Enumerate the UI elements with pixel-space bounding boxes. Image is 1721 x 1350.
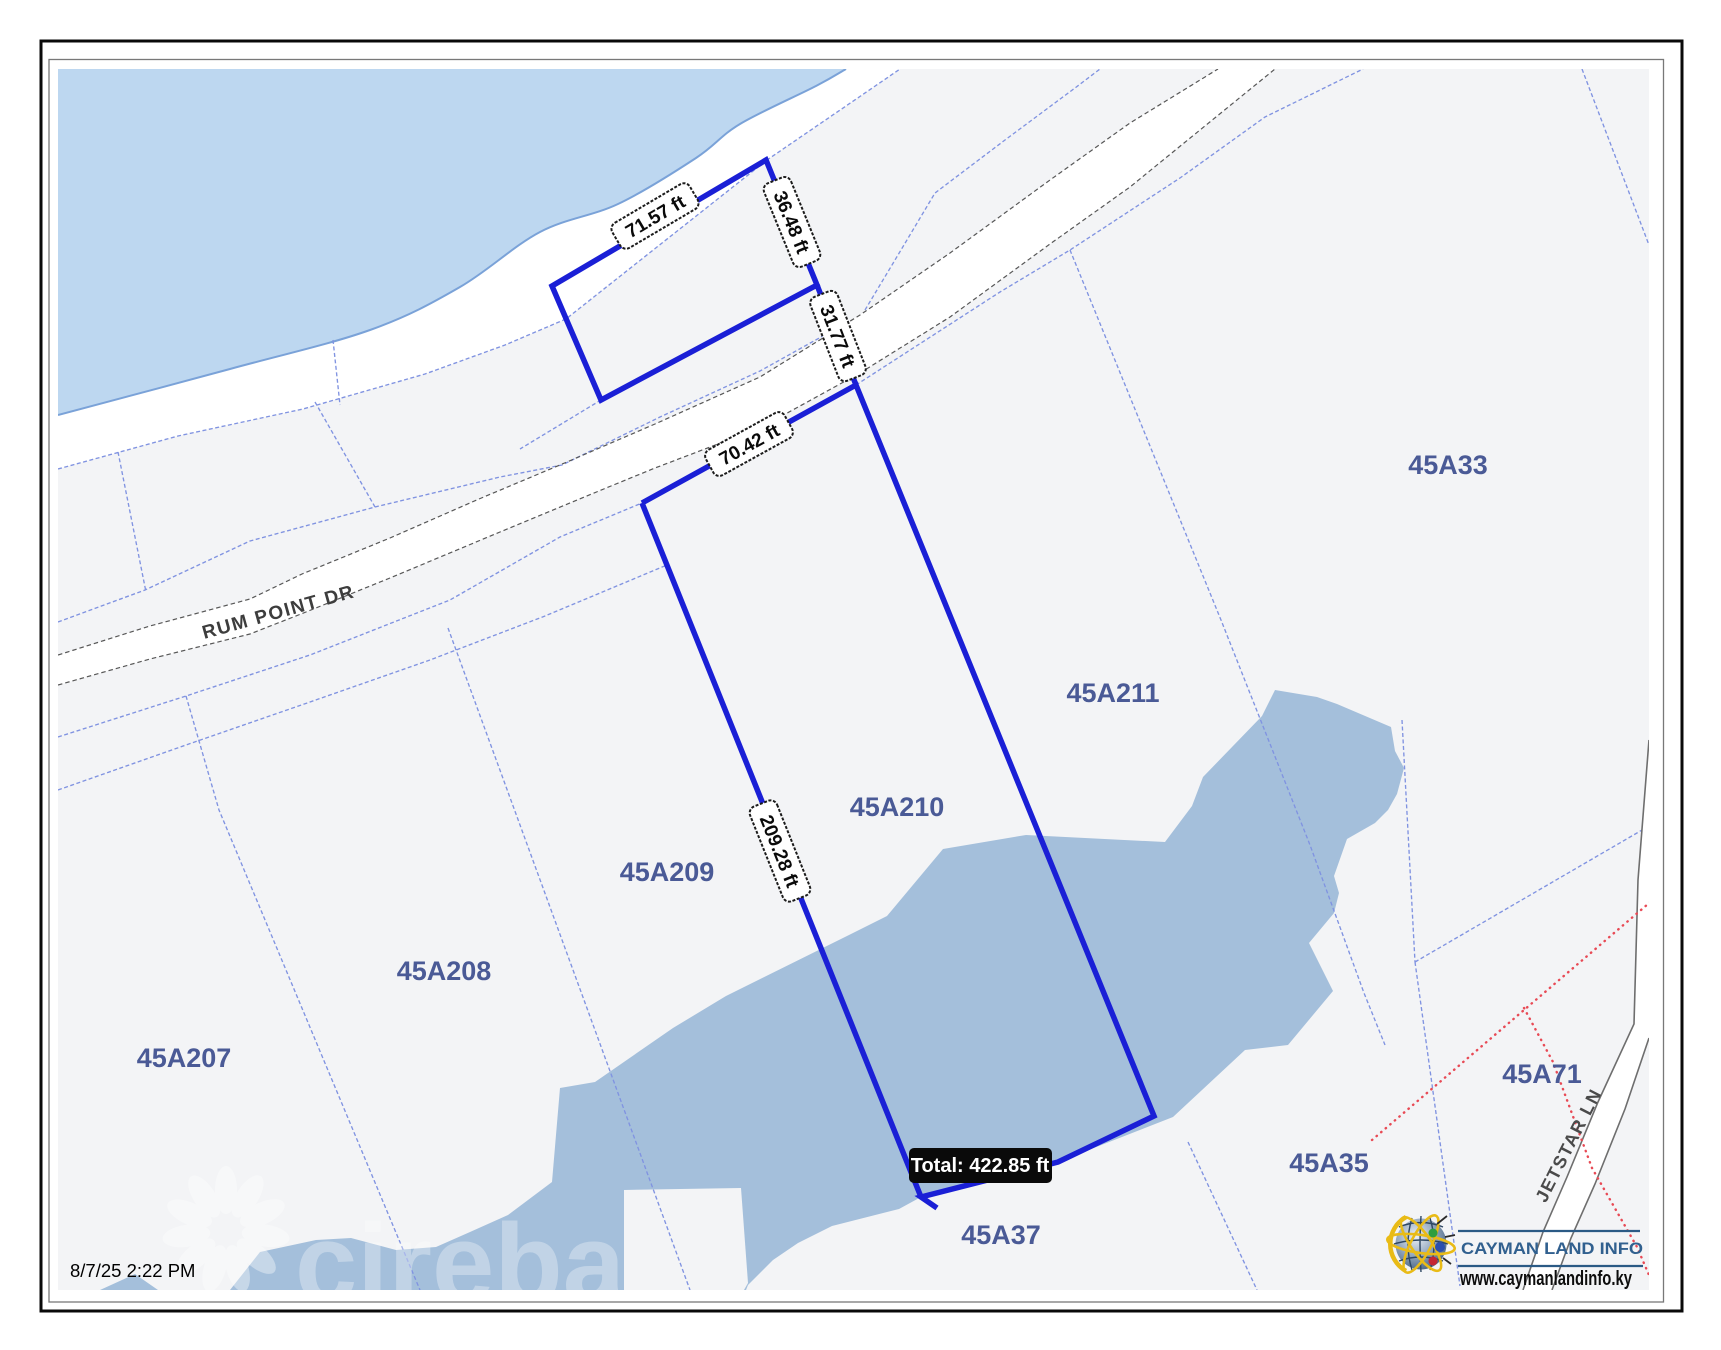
svg-text:45A207: 45A207 <box>137 1043 232 1073</box>
svg-text:CAYMAN LAND INFO: CAYMAN LAND INFO <box>1461 1240 1643 1258</box>
svg-text:45A211: 45A211 <box>1066 678 1159 708</box>
svg-text:45A35: 45A35 <box>1289 1148 1369 1178</box>
svg-text:Total: 422.85 ft: Total: 422.85 ft <box>911 1155 1050 1177</box>
svg-text:45A71: 45A71 <box>1502 1059 1582 1089</box>
svg-text:www.caymanlandinfo.ky: www.caymanlandinfo.ky <box>1459 1267 1632 1290</box>
svg-text:45A209: 45A209 <box>620 857 715 887</box>
svg-text:45A208: 45A208 <box>397 956 492 986</box>
svg-text:45A33: 45A33 <box>1408 450 1488 480</box>
svg-text:8/7/25 2:22 PM: 8/7/25 2:22 PM <box>70 1260 195 1281</box>
svg-text:45A210: 45A210 <box>850 792 945 822</box>
svg-text:45A37: 45A37 <box>961 1220 1041 1250</box>
svg-text:cireba: cireba <box>295 1201 626 1326</box>
